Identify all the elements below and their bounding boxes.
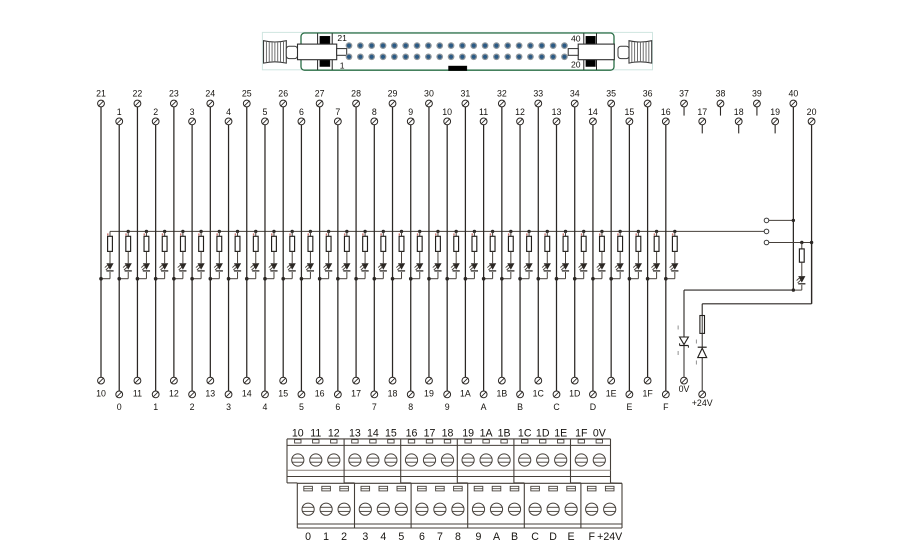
- svg-text:C: C: [531, 531, 539, 543]
- svg-text:0: 0: [305, 531, 311, 543]
- svg-text:4: 4: [226, 107, 231, 117]
- svg-text:5: 5: [299, 402, 304, 412]
- svg-text:6: 6: [335, 402, 340, 412]
- svg-text:9: 9: [408, 107, 413, 117]
- svg-text:2: 2: [190, 402, 195, 412]
- svg-text:+24V: +24V: [597, 531, 623, 543]
- svg-text:6: 6: [299, 107, 304, 117]
- svg-text:12: 12: [515, 107, 525, 117]
- svg-text:32: 32: [497, 88, 507, 98]
- svg-text:0V: 0V: [593, 428, 607, 440]
- svg-text:4: 4: [380, 531, 386, 543]
- svg-text:18: 18: [388, 388, 398, 398]
- svg-text:1D: 1D: [569, 388, 580, 398]
- svg-text:1B: 1B: [498, 428, 511, 440]
- svg-text:1A: 1A: [480, 428, 494, 440]
- svg-text:38: 38: [716, 88, 726, 98]
- svg-text:0V: 0V: [679, 384, 690, 394]
- svg-text:9: 9: [445, 402, 450, 412]
- svg-text:18: 18: [442, 428, 454, 440]
- svg-text:E: E: [626, 402, 632, 412]
- svg-text:21: 21: [337, 33, 347, 43]
- svg-text:1F: 1F: [575, 428, 588, 440]
- svg-text:15: 15: [278, 388, 288, 398]
- svg-text:29: 29: [388, 88, 398, 98]
- svg-text:13: 13: [205, 388, 215, 398]
- svg-text:8: 8: [372, 107, 377, 117]
- svg-text:1C: 1C: [518, 428, 532, 440]
- svg-text:A: A: [493, 531, 501, 543]
- svg-text:+24V: +24V: [692, 398, 713, 408]
- svg-text:23: 23: [169, 88, 179, 98]
- svg-text:14: 14: [367, 428, 379, 440]
- svg-text:13: 13: [349, 428, 361, 440]
- svg-text:16: 16: [661, 107, 671, 117]
- svg-text:10: 10: [96, 388, 106, 398]
- svg-text:11: 11: [479, 107, 488, 117]
- svg-text:19: 19: [770, 107, 780, 117]
- svg-text:34: 34: [570, 88, 580, 98]
- svg-text:20: 20: [571, 60, 581, 70]
- svg-text:6: 6: [419, 531, 425, 543]
- svg-text:B: B: [511, 531, 518, 543]
- svg-text:16: 16: [315, 388, 325, 398]
- svg-text:27: 27: [315, 88, 325, 98]
- svg-text:8: 8: [455, 531, 461, 543]
- svg-text:35: 35: [606, 88, 616, 98]
- svg-text:36: 36: [643, 88, 653, 98]
- svg-text:D: D: [549, 531, 557, 543]
- svg-text:14: 14: [588, 107, 598, 117]
- svg-text:1B: 1B: [496, 388, 507, 398]
- svg-text:F: F: [588, 531, 595, 543]
- svg-text:1E: 1E: [554, 428, 567, 440]
- svg-text:31: 31: [461, 88, 471, 98]
- svg-text:24: 24: [205, 88, 215, 98]
- svg-text:13: 13: [552, 107, 562, 117]
- svg-text:A: A: [481, 402, 487, 412]
- svg-text:1F: 1F: [642, 388, 653, 398]
- svg-text:9: 9: [476, 531, 482, 543]
- svg-text:B: B: [517, 402, 523, 412]
- svg-text:D: D: [590, 402, 596, 412]
- svg-text:3: 3: [190, 107, 195, 117]
- svg-text:17: 17: [351, 388, 361, 398]
- svg-text:4: 4: [263, 402, 268, 412]
- svg-text:14: 14: [242, 388, 252, 398]
- svg-text:17: 17: [697, 107, 707, 117]
- svg-text:8: 8: [408, 402, 413, 412]
- svg-text:2: 2: [341, 531, 347, 543]
- svg-text:1: 1: [340, 61, 345, 71]
- svg-text:26: 26: [278, 88, 288, 98]
- svg-text:11: 11: [310, 428, 321, 440]
- svg-text:1: 1: [117, 107, 122, 117]
- svg-text:15: 15: [385, 428, 397, 440]
- svg-text:5: 5: [263, 107, 268, 117]
- svg-text:40: 40: [788, 88, 798, 98]
- svg-text:20: 20: [807, 107, 817, 117]
- svg-text:11: 11: [133, 388, 142, 398]
- svg-text:2: 2: [153, 107, 158, 117]
- svg-text:C: C: [553, 402, 560, 412]
- svg-text:21: 21: [96, 88, 106, 98]
- svg-text:33: 33: [533, 88, 543, 98]
- svg-text:12: 12: [328, 428, 340, 440]
- svg-text:30: 30: [424, 88, 434, 98]
- svg-text:7: 7: [335, 107, 340, 117]
- svg-text:3: 3: [362, 531, 368, 543]
- svg-text:F: F: [663, 402, 669, 412]
- svg-text:25: 25: [242, 88, 252, 98]
- svg-text:17: 17: [424, 428, 436, 440]
- svg-text:3: 3: [226, 402, 231, 412]
- svg-text:1A: 1A: [460, 388, 471, 398]
- svg-text:7: 7: [437, 531, 443, 543]
- svg-text:15: 15: [624, 107, 634, 117]
- svg-text:1E: 1E: [606, 388, 617, 398]
- svg-text:1D: 1D: [536, 428, 550, 440]
- svg-text:1: 1: [153, 402, 158, 412]
- svg-text:5: 5: [398, 531, 404, 543]
- svg-text:40: 40: [571, 34, 581, 44]
- svg-text:19: 19: [424, 388, 434, 398]
- svg-text:10: 10: [292, 428, 304, 440]
- svg-text:37: 37: [679, 88, 689, 98]
- svg-text:0: 0: [117, 402, 122, 412]
- svg-text:39: 39: [752, 88, 762, 98]
- svg-text:22: 22: [133, 88, 143, 98]
- svg-text:19: 19: [462, 428, 474, 440]
- svg-text:12: 12: [169, 388, 179, 398]
- svg-text:10: 10: [442, 107, 452, 117]
- svg-text:1C: 1C: [533, 388, 545, 398]
- svg-text:28: 28: [351, 88, 361, 98]
- svg-text:18: 18: [734, 107, 744, 117]
- svg-text:1: 1: [323, 531, 329, 543]
- svg-text:E: E: [568, 531, 575, 543]
- svg-text:7: 7: [372, 402, 377, 412]
- svg-text:16: 16: [406, 428, 418, 440]
